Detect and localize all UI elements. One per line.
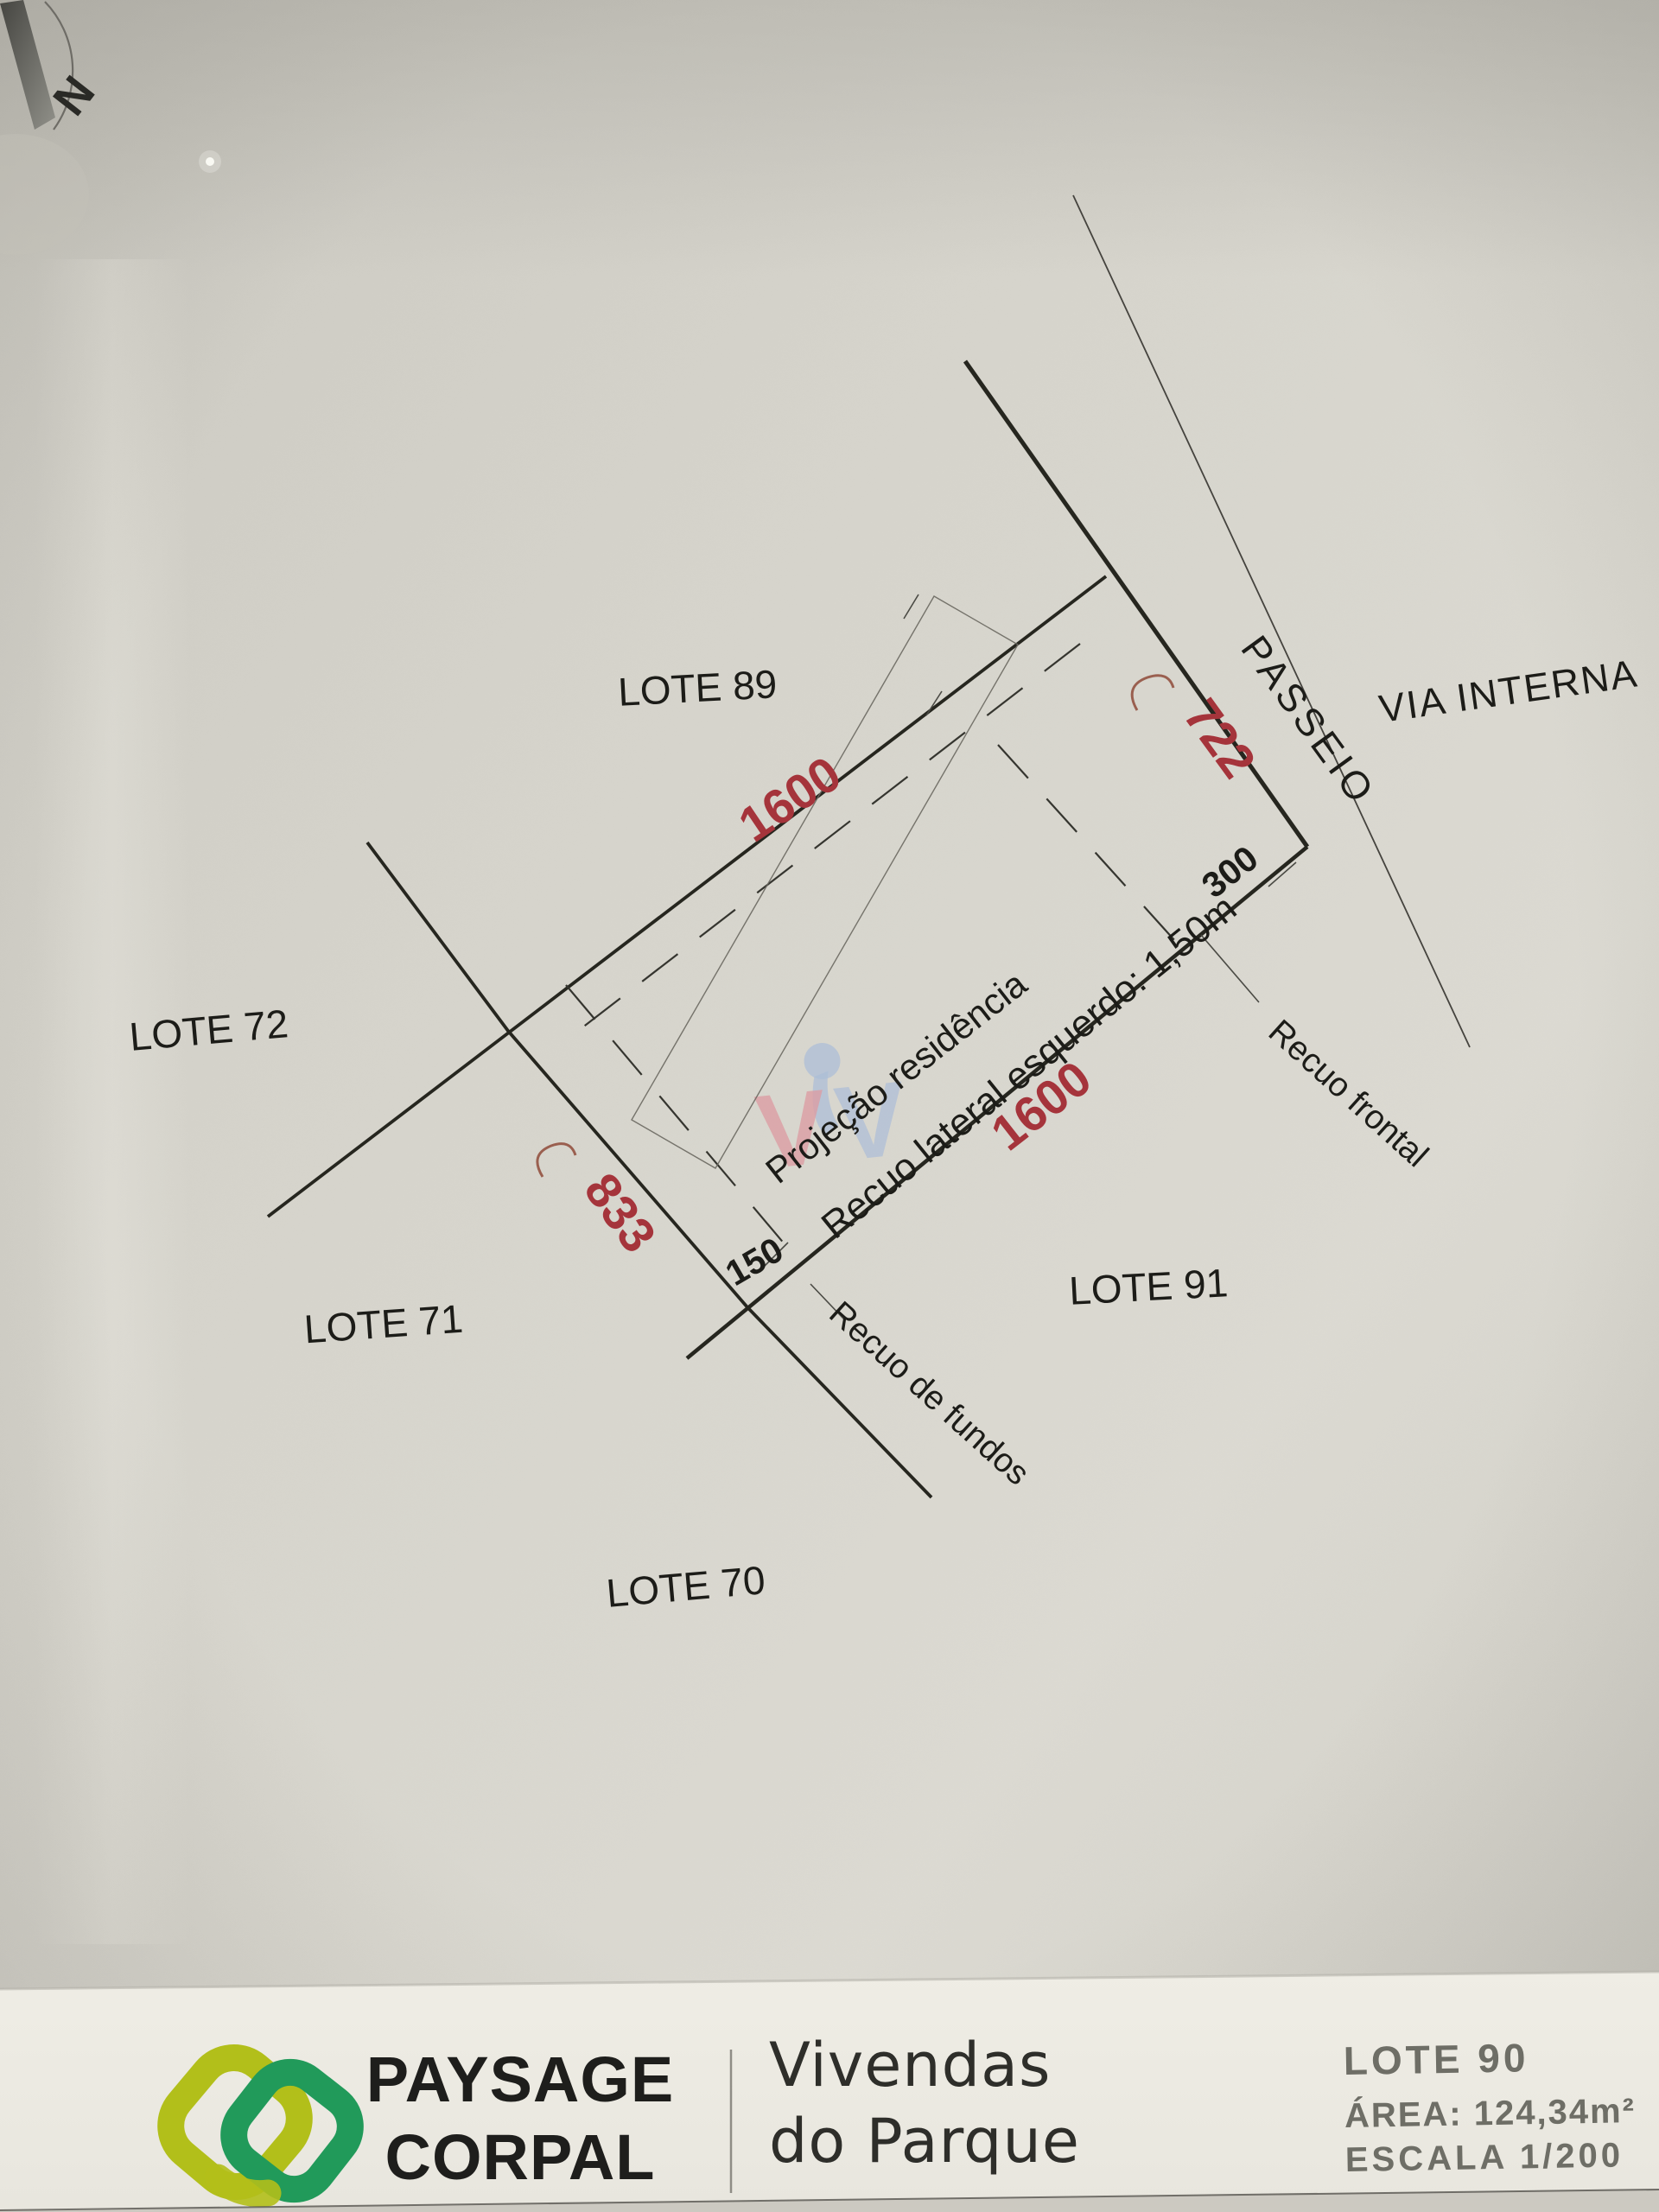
brand-name-line1: PAYSAGE	[366, 2044, 675, 2115]
footer-scale: ESCALA 1/200	[1344, 2136, 1624, 2179]
label-lote-91: LOTE 91	[1068, 1260, 1230, 1313]
footer-area: ÁREA: 124,34m²	[1344, 2091, 1637, 2135]
glare-spot	[206, 157, 214, 166]
site-plan: N V V 1600 1600 722 833 300	[0, 0, 1659, 2212]
footer-lot-title: LOTE 90	[1343, 2035, 1529, 2083]
brand-name-line2: CORPAL	[385, 2121, 656, 2193]
project-name-line1: Vivendas	[769, 2030, 1051, 2101]
project-name-line2: do Parque	[769, 2106, 1080, 2177]
photographed-site-plan: N V V 1600 1600 722 833 300	[0, 0, 1659, 2212]
label-lote-89: LOTE 89	[617, 661, 779, 715]
